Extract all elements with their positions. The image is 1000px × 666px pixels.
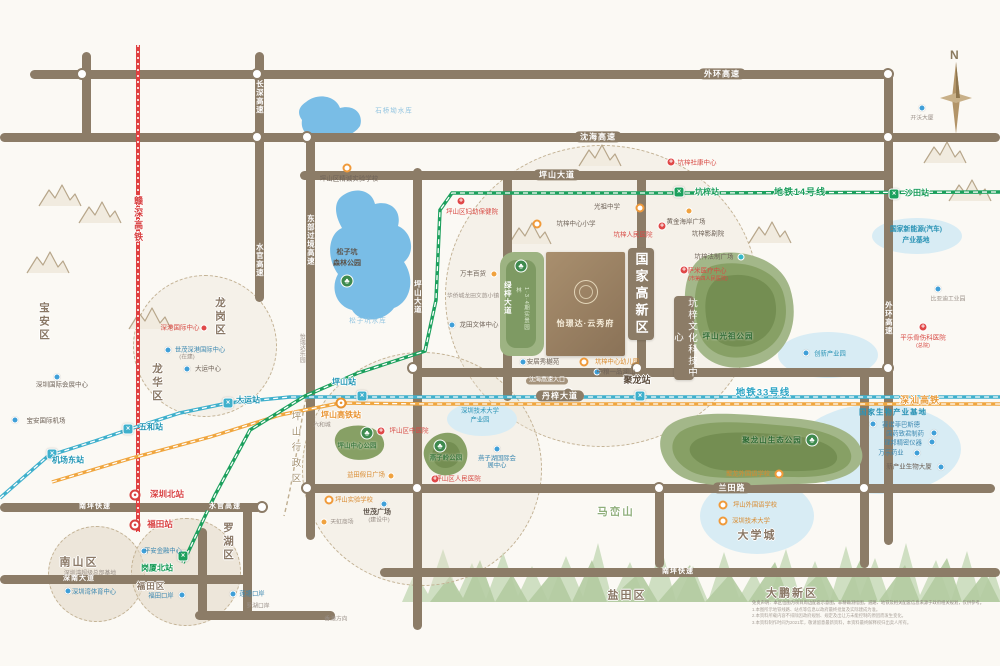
railway-station-icon: ● xyxy=(130,490,141,501)
poi-building-icon xyxy=(54,374,61,381)
national-hightech-zone-banner: 国家高新区 xyxy=(628,248,654,340)
poi-label: 世茂深港国际中心 xyxy=(175,346,225,353)
poi-label: 万乐药业 xyxy=(878,449,903,456)
lake-label: 松子坑水库 xyxy=(349,317,387,324)
poi-label: 燕子湖国际会展中心 xyxy=(476,455,518,469)
hospital-icon: + xyxy=(658,222,667,231)
industry-zone-label: 深圳技术大学 xyxy=(461,407,499,414)
school-icon xyxy=(580,358,589,367)
station-label: 深圳北站 xyxy=(150,490,184,500)
railway-station-icon: ● xyxy=(130,520,141,531)
project-phase-label: 1·3·4期实景园林 xyxy=(514,287,530,333)
hospital-label: 平乐骨伤科医院 xyxy=(900,334,946,341)
poi-label: 坑梓影剧院 xyxy=(692,230,725,237)
road-node xyxy=(251,68,263,80)
road-node xyxy=(653,482,665,494)
road-node xyxy=(301,131,313,143)
industry-zone-label: 产业基地 xyxy=(902,237,929,245)
metro-station-icon: × xyxy=(223,398,234,409)
poi-label: 六和城 xyxy=(313,423,330,430)
school-label: 坪山实验学校 xyxy=(335,496,373,503)
lake-label: 石桥坳水库 xyxy=(375,107,413,114)
hospital-icon: + xyxy=(919,323,928,332)
industry-zone-label: 创新产业园 xyxy=(814,350,845,357)
school-label: 聚龙外国语学校 xyxy=(726,470,770,477)
road-label: 坪山大道 xyxy=(413,280,422,314)
road-node xyxy=(301,482,313,494)
project-logo-icon xyxy=(574,280,598,304)
poi-label: 福田口岸 xyxy=(148,592,173,599)
road-node xyxy=(882,68,894,80)
school-icon xyxy=(719,517,728,526)
poi-building-icon xyxy=(179,592,186,599)
poi-label: 华侨城龙田文旅小镇 xyxy=(447,294,499,301)
poi-building-icon xyxy=(520,359,527,366)
road-node xyxy=(251,131,263,143)
road-label: 东部过境高速 xyxy=(306,215,315,266)
region-map: 国家高新区 坑梓文化科技中心 1·3·4期实景园林 怡璟达·云秀府 N 免责声明… xyxy=(0,0,1000,666)
school-label: 坪山区精诚实验学校 xyxy=(320,175,379,182)
poi-label: 国药致君制药 xyxy=(886,430,924,437)
station-label: 坪山高铁站 xyxy=(321,410,361,419)
road-label: 外环高速 xyxy=(884,301,893,335)
disclaimer-line: 免责声明：本区位图为项目周边配套示意图，非精确测绘图，道路、地铁及相关配套信息来… xyxy=(752,600,992,607)
road-node xyxy=(411,482,423,494)
poi-building-icon xyxy=(184,366,191,373)
metro-station-icon: × xyxy=(635,391,646,402)
poi-building-icon xyxy=(449,322,456,329)
rail-line-label: 赣深高铁 xyxy=(133,196,143,244)
railway-station-icon: ● xyxy=(336,398,347,409)
industry-zone-label: 国家新能源(汽车) xyxy=(890,226,942,234)
road-label: 水官高速 xyxy=(205,503,245,511)
shenshan-hsr-line xyxy=(52,403,1000,482)
station-label: 沙田站 xyxy=(905,188,929,197)
metro-station-icon: × xyxy=(674,187,685,198)
park-label: 坪山中心公园 xyxy=(338,442,377,449)
poi-label: (在建) xyxy=(179,355,194,362)
disclaimer-line: 3.本资料制作时间为2021年，敬请留意最新资料，本资料最终解释权归出卖人所有。 xyxy=(752,620,992,627)
poi-label: 理邦精密仪器 xyxy=(884,439,922,446)
rail-line-label: 地铁14号线 xyxy=(774,187,826,197)
hospital-icon: + xyxy=(457,197,466,206)
hospital-icon: + xyxy=(667,158,676,167)
poi-label: 莲塘口岸 xyxy=(239,590,264,597)
school-icon xyxy=(325,496,334,505)
station-label: 五和站 xyxy=(139,422,163,431)
poi-building-icon xyxy=(938,464,945,471)
hospital-icon: + xyxy=(377,427,386,436)
road-node xyxy=(407,362,419,374)
poi-building-icon xyxy=(929,439,936,446)
school-icon xyxy=(343,164,352,173)
road-entry-label: 沈海高速入口 xyxy=(526,378,568,385)
road-label: 绿梓大道 xyxy=(503,281,512,315)
station-label: 机场东站 xyxy=(52,455,84,464)
poi-label: 深圳湾超级总部基地 xyxy=(64,571,116,578)
poi-label: 大运中心 xyxy=(195,365,221,372)
poi-building-icon xyxy=(494,446,501,453)
poi-building-icon xyxy=(919,105,926,112)
poi-label: 新产业生物大厦 xyxy=(886,463,932,470)
school-label: 光祖中学 xyxy=(594,203,620,210)
poi-label: 安居秀樾苑 xyxy=(527,358,560,365)
station-label: 大运站 xyxy=(236,395,260,404)
metro-station-icon: × xyxy=(889,189,900,200)
compass-rose-icon xyxy=(936,50,976,136)
park-label: 聚龙山生态公园 xyxy=(742,437,802,446)
road-label: 南坪快速 xyxy=(75,503,115,511)
park-tree-icon: ♣ xyxy=(341,275,354,288)
park-label: 松子坑 xyxy=(337,249,358,257)
station-label: 聚龙站 xyxy=(623,375,650,385)
hospital-label: 坪山区妇幼保健院 xyxy=(446,208,498,215)
project-name: 怡璟达·云秀府 xyxy=(557,318,615,329)
poi-building-icon xyxy=(931,430,938,437)
mountain-label: 马峦山 xyxy=(597,506,635,518)
school-label: 深圳技术大学 xyxy=(732,517,770,524)
industry-zone-label: 国家生物产业基地 xyxy=(859,409,927,418)
hospital-label: 坑梓社康中心 xyxy=(678,159,717,166)
road-label: 外环高速 xyxy=(698,68,746,79)
poi-label: 万丰百货 xyxy=(460,270,486,277)
shopping-icon xyxy=(686,208,693,215)
poi-label: (建设中) xyxy=(368,518,389,525)
park-label: 坪山光祖公园 xyxy=(703,333,754,342)
road-label: 沈海高速 xyxy=(574,131,622,142)
road-node xyxy=(76,68,88,80)
poi-building-icon xyxy=(870,421,877,428)
district-label: 大学城 xyxy=(738,530,777,543)
poi-building-icon xyxy=(381,501,388,508)
poi-label: 比亚迪工业园 xyxy=(931,297,966,304)
poi-building-icon xyxy=(935,286,942,293)
school-icon xyxy=(533,220,542,229)
poi-label: 深圳国际会展中心 xyxy=(36,381,88,388)
district-label: 罗湖区 xyxy=(222,522,234,563)
station-label: 岗厦北站 xyxy=(141,563,173,572)
poi-label: 天虹商场 xyxy=(330,520,353,527)
school-icon xyxy=(775,470,784,479)
station-label: 福田站 xyxy=(147,520,173,530)
school-label: 坑梓中心小学 xyxy=(557,220,596,227)
road-node xyxy=(858,482,870,494)
poi-label: 世茂广场 xyxy=(363,509,391,517)
poi-building-icon xyxy=(230,591,237,598)
school-label: 坑梓中心幼儿园 xyxy=(595,358,639,365)
shopping-icon xyxy=(388,473,395,480)
rail-line-label: 深汕高铁 xyxy=(900,395,940,405)
shopping-icon xyxy=(491,271,498,278)
hospital-label: 坑梓人民医院 xyxy=(614,231,653,238)
district-label: 龙华区 xyxy=(151,363,163,404)
poi-label: 龙田文体中心 xyxy=(460,321,499,328)
landmark-icon xyxy=(201,325,208,332)
compass-north-label: N xyxy=(950,48,959,62)
project-site-block: 怡璟达·云秀府 xyxy=(546,252,625,356)
poi-label: 宝安国际机场 xyxy=(27,417,66,424)
poi-building-icon xyxy=(165,347,172,354)
park-tree-icon: ♣ xyxy=(434,440,447,453)
park-tree-icon: ♣ xyxy=(361,427,374,440)
district-label: 宝安区 xyxy=(38,302,50,343)
industry-zone-label: 产业园 xyxy=(471,416,490,423)
park-tree-icon: ♣ xyxy=(806,434,819,447)
road-label: 坪山大道 xyxy=(533,169,581,180)
school-icon xyxy=(719,501,728,510)
school-label: 坪山外国语学校 xyxy=(733,501,777,508)
poi-label: 深圳湾体育中心 xyxy=(72,588,116,595)
poi-label: 坑梓法制广场 xyxy=(695,253,734,260)
poi-label: 深港国际中心 xyxy=(161,324,200,331)
poi-building-icon xyxy=(914,450,921,457)
poi-label: 中粮一品澜山 xyxy=(597,368,636,375)
hospital-label: (总院) xyxy=(916,344,930,350)
district-label: 福田区 xyxy=(137,582,166,592)
poi-label: 黄金海岸广场 xyxy=(667,218,706,225)
hospital-label: 萨米医疗中心 xyxy=(688,267,727,274)
compass: N xyxy=(936,50,976,141)
poi-label: 平安金融中心 xyxy=(144,547,182,554)
kengzi-culture-tech-center-banner: 坑梓文化科技中心 xyxy=(674,296,694,380)
district-label: 大鹏新区 xyxy=(766,588,818,601)
school-icon xyxy=(636,204,645,213)
district-label: 坪山行政区 xyxy=(289,411,300,489)
metro-station-icon: × xyxy=(357,391,368,402)
poi-icon xyxy=(738,254,745,261)
poi-building-icon xyxy=(12,417,19,424)
poi-label: 赛诺菲巴斯德 xyxy=(882,421,920,428)
road-label: 丹梓大道 xyxy=(536,390,584,401)
road-label: 南坪快速 xyxy=(658,568,698,576)
poi-building-icon xyxy=(803,350,810,357)
road-node xyxy=(256,501,268,513)
park-tree-icon: ♣ xyxy=(515,260,528,273)
park-label: 森林公园 xyxy=(333,260,361,268)
poi-label: 罗湖口岸 xyxy=(246,604,269,611)
station-label: 坪山站 xyxy=(332,377,356,386)
hospital-label: 坪山区中医院 xyxy=(390,427,429,434)
road-label: 兰田路 xyxy=(713,482,752,493)
poi-label: 开沃大厦 xyxy=(910,116,933,123)
road-node xyxy=(882,131,894,143)
district-label: 盐田区 xyxy=(608,590,647,603)
station-label: 坑梓站 xyxy=(695,187,719,196)
direction-label: 香港方向 xyxy=(324,617,347,624)
disclaimer-text: 免责声明：本区位图为项目周边配套示意图，非精确测绘图，道路、地铁及相关配套信息来… xyxy=(752,600,992,627)
poi-building-icon xyxy=(65,588,72,595)
road-node xyxy=(882,362,894,374)
poi-label: 怡瑞达乐园 xyxy=(298,334,305,363)
road-label: 水官高速 xyxy=(255,243,264,277)
shopping-icon xyxy=(321,519,328,526)
hospital-label: 坪山区人民医院 xyxy=(435,475,481,482)
disclaimer-line: 2.本资料所载内容不排除因政府规划、规定及出让方未能控制的原因而发生变化。 xyxy=(752,613,992,620)
road-label: 长深高速 xyxy=(255,80,264,114)
park-label: 燕子岭公园 xyxy=(430,454,463,461)
district-label: 龙岗区 xyxy=(214,297,226,338)
poi-label: 益田假日广场 xyxy=(347,471,385,478)
metro-station-icon: × xyxy=(123,424,134,435)
rail-line-label: 地铁33号线 xyxy=(736,389,791,400)
district-label: 南山区 xyxy=(60,557,99,570)
hospital-label: (市第四人民医院) xyxy=(688,277,728,283)
